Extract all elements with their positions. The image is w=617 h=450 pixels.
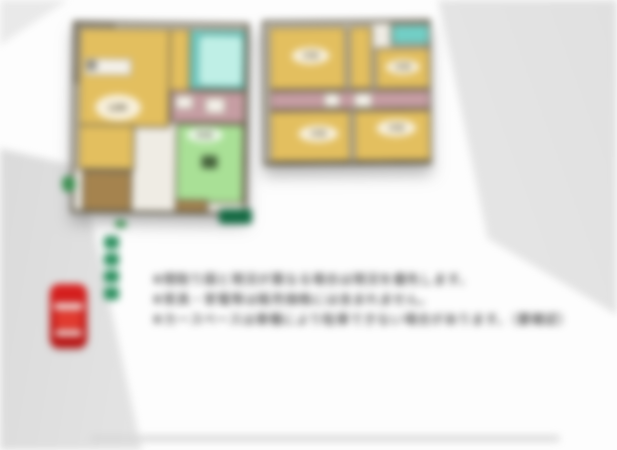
- entrance-step: [175, 199, 208, 212]
- path-marker-icon: [104, 270, 119, 283]
- entrance-porch: [82, 170, 132, 212]
- bathtub-icon: [196, 33, 245, 88]
- hallway-door-2: [354, 93, 372, 108]
- shrub-icon: [62, 176, 76, 192]
- stove-icon: [87, 60, 97, 70]
- note-line-3: ※カースペースは車種により駐車できない場合があります。（要確認）: [152, 310, 572, 330]
- room-ldk-lower: [77, 124, 135, 171]
- car-icon: [50, 284, 87, 348]
- hallway-2f: [269, 89, 431, 110]
- note-line-2: ※家具・家電等は販売価格には含まれません。: [152, 290, 572, 310]
- toilet-icon: [205, 98, 225, 114]
- shrub-icon-2: [115, 220, 127, 228]
- car-windshield: [54, 303, 83, 310]
- sink-icon: [175, 95, 193, 109]
- path-marker-icon: [104, 253, 119, 266]
- floorplan-1f: LDK 和室: [71, 21, 249, 215]
- closet-2f: [348, 26, 373, 90]
- note-line-1: ※間取り図と現況が異なる場合は現況を優先します。: [152, 270, 572, 290]
- path-marker-icon: [104, 287, 119, 300]
- green-label-chip: [219, 209, 252, 224]
- notes: ※間取り図と現況が異なる場合は現況を優先します。 ※家具・家電等は販売価格には含…: [152, 270, 572, 330]
- blurred-scene: LDK 和室 洋室 洋室: [0, 0, 617, 450]
- paper-bottom-edge: [90, 435, 560, 442]
- washitsu-table: [201, 156, 217, 169]
- car-rear-window: [55, 330, 82, 336]
- bathroom-2f: [390, 23, 430, 45]
- path-marker-icon: [104, 236, 119, 249]
- car-roof: [56, 312, 81, 328]
- floorplan-2f: 洋室 洋室 洋室 洋室: [262, 19, 431, 165]
- room-label-ldk: LDK: [95, 94, 141, 121]
- room-label-washitsu: 和室: [187, 127, 223, 142]
- hallway-door: [324, 93, 340, 107]
- floorplan-photo: LDK 和室 洋室 洋室: [0, 0, 617, 450]
